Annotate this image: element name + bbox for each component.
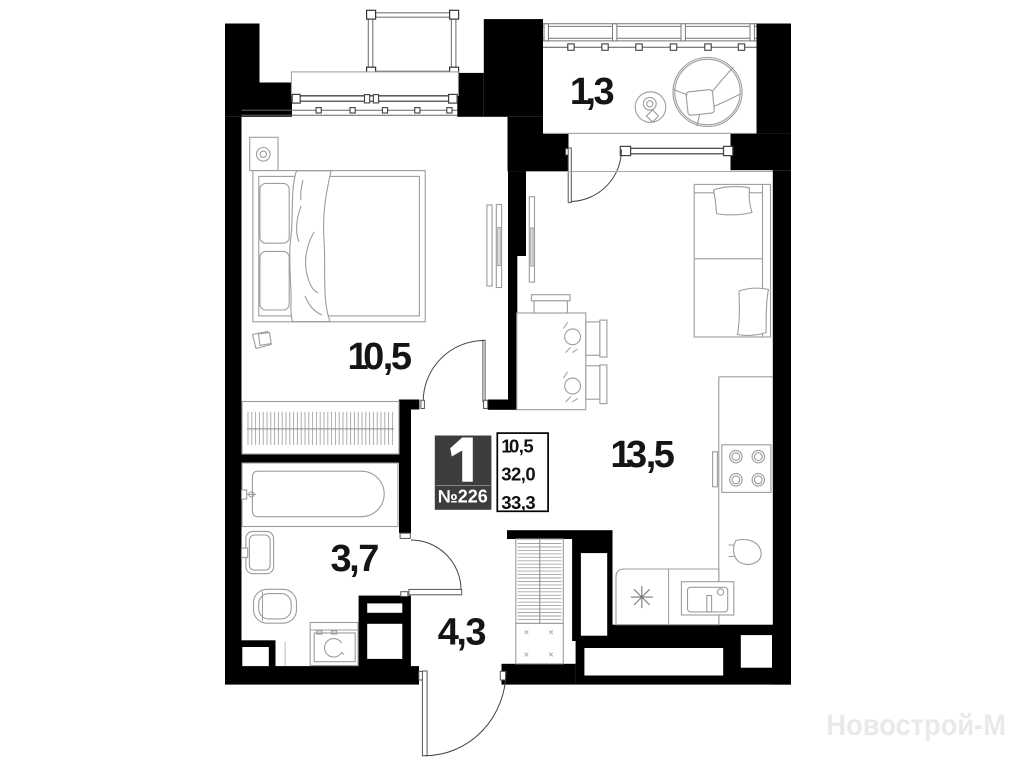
svg-text:№226: №226 [438,487,488,507]
svg-text:1,3: 1,3 [570,71,614,113]
svg-text:33,3: 33,3 [501,492,535,513]
svg-text:10,5: 10,5 [501,435,533,456]
svg-text:10,5: 10,5 [348,336,412,378]
svg-text:13,5: 13,5 [610,434,674,476]
svg-text:32,0: 32,0 [501,464,535,485]
svg-text:3,7: 3,7 [331,538,379,580]
svg-text:Новострой-М: Новострой-М [826,709,1006,742]
svg-text:4,3: 4,3 [438,611,486,653]
